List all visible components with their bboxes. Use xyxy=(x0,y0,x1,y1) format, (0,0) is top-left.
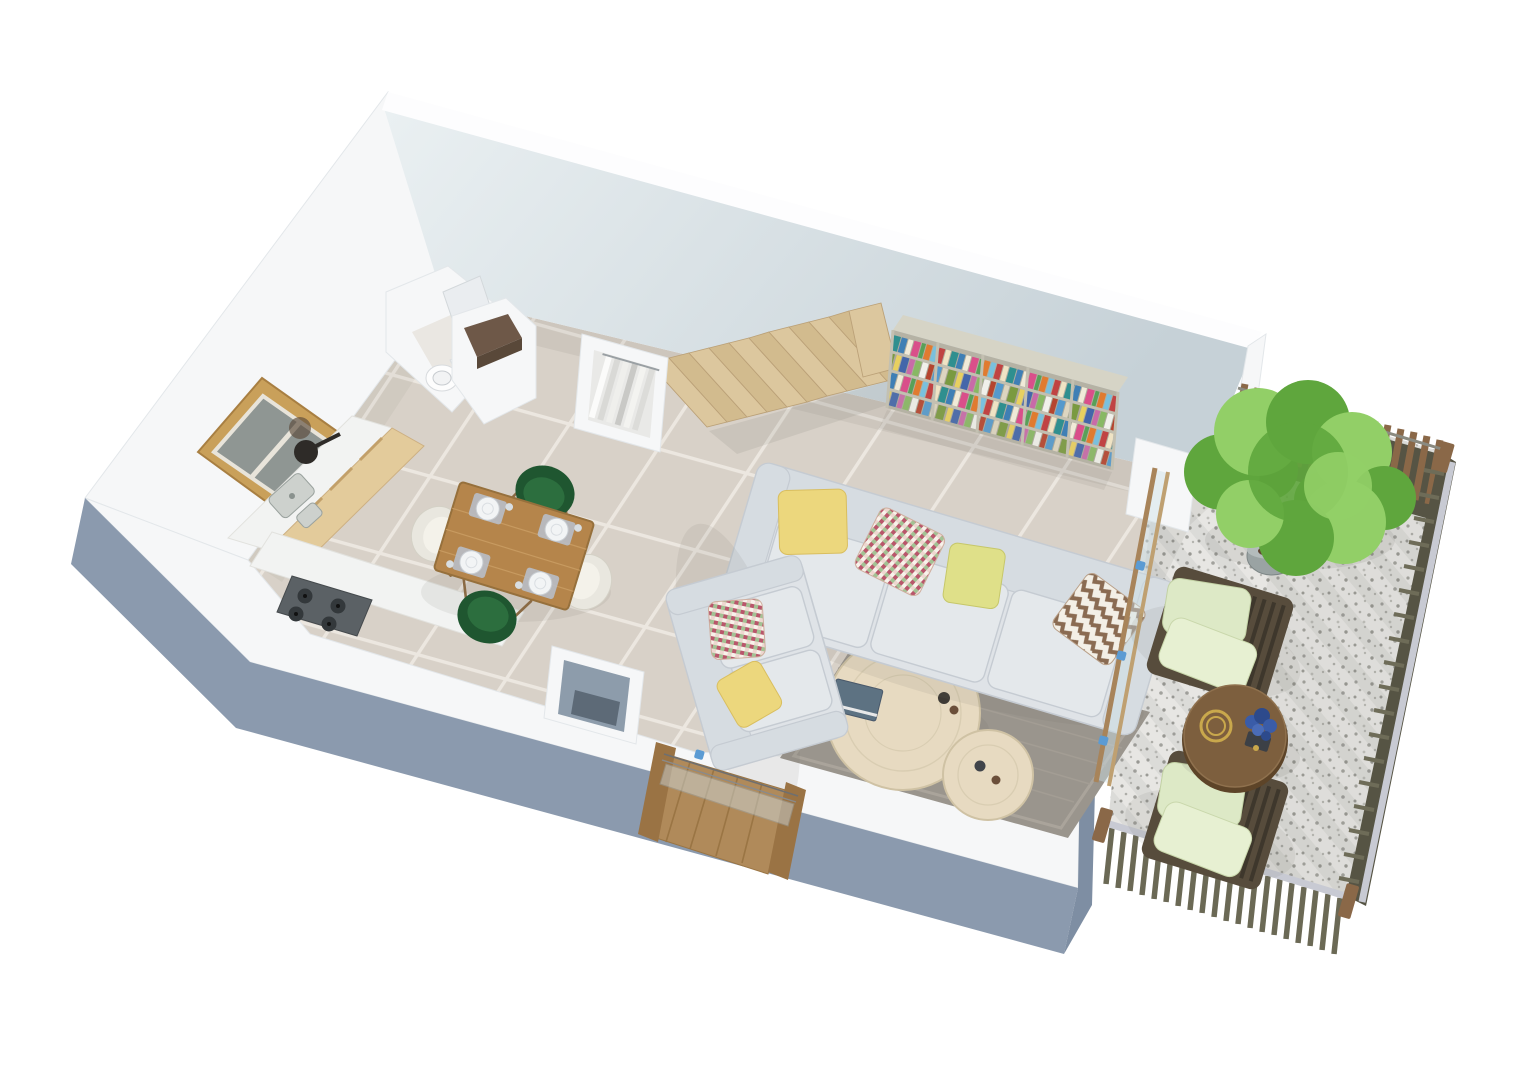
vase xyxy=(975,761,986,772)
floor-plan-svg xyxy=(0,0,1528,1080)
frying-pan xyxy=(294,440,318,464)
vase xyxy=(992,776,1001,785)
coffee-table-small xyxy=(943,730,1033,820)
pan-reflection xyxy=(289,417,311,439)
pillow-mosaic xyxy=(708,598,766,660)
pillow-yellow xyxy=(778,489,848,555)
pillow-green xyxy=(942,542,1006,610)
floor-plan-render xyxy=(0,0,1528,1080)
vase xyxy=(950,706,959,715)
